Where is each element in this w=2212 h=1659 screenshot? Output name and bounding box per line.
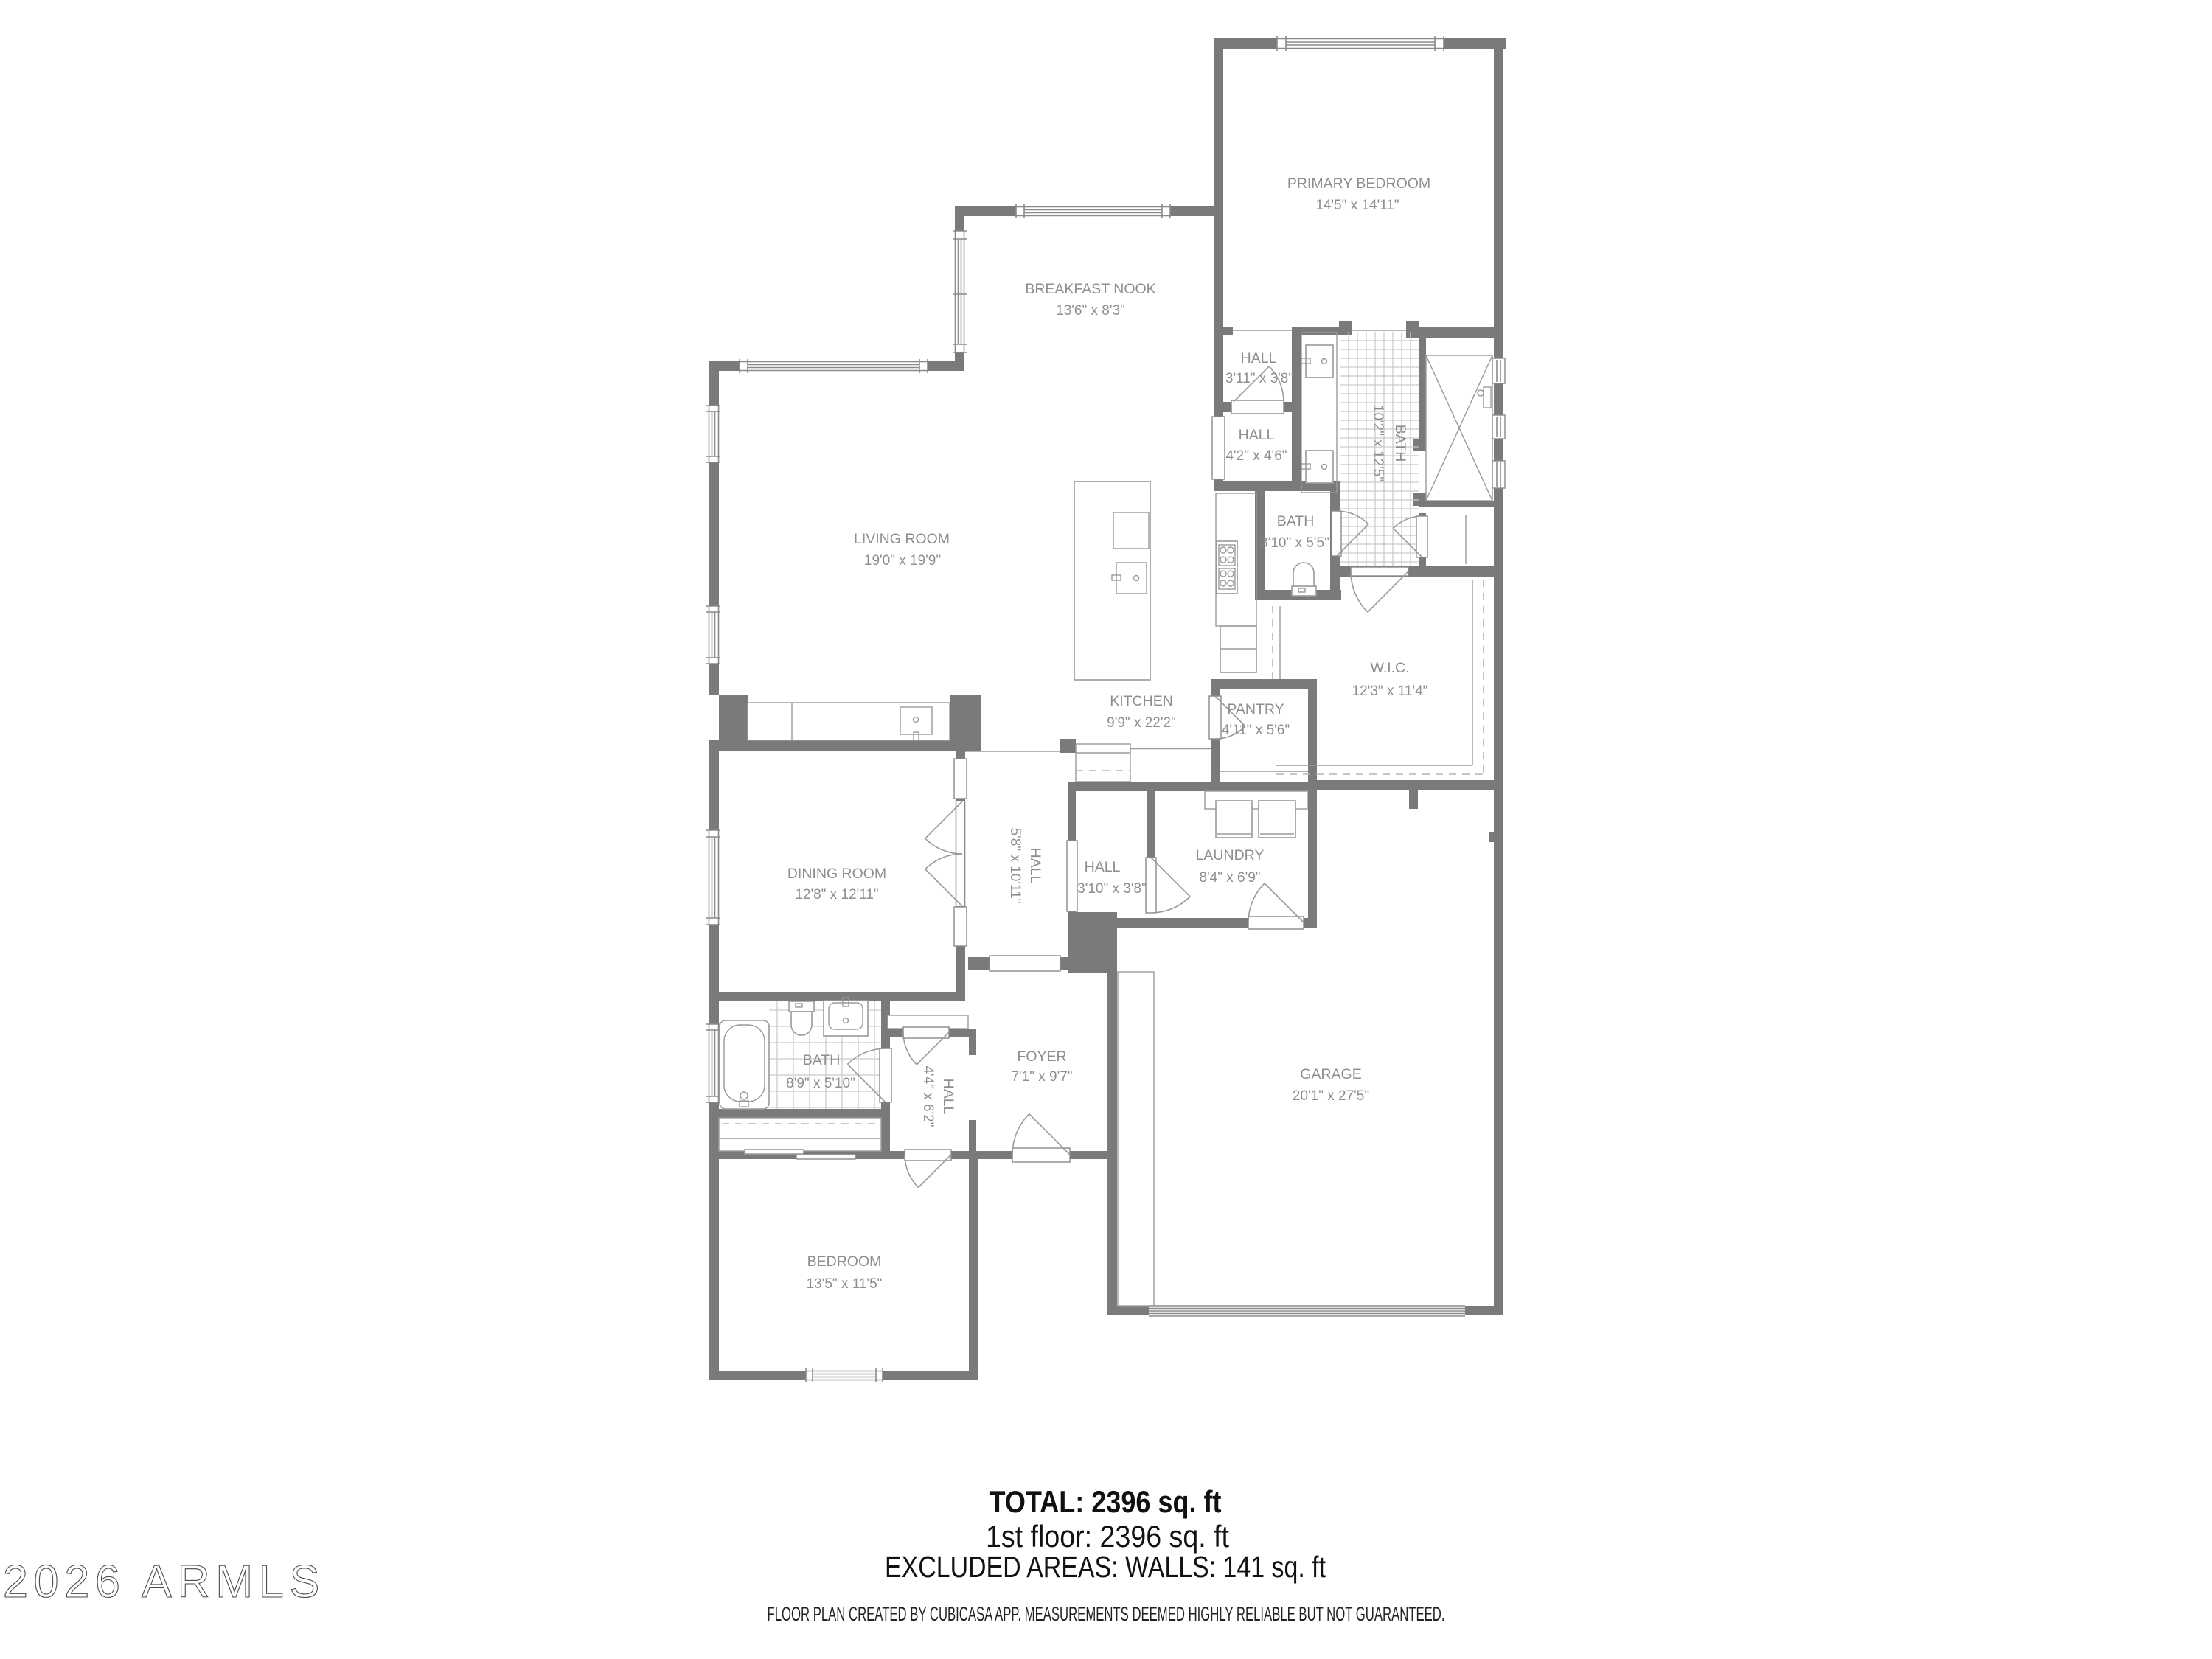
- svg-text:EXCLUDED AREAS: WALLS: 141 sq.: EXCLUDED AREAS: WALLS: 141 sq. ft: [885, 1550, 1326, 1584]
- svg-text:12'3" x 11'4": 12'3" x 11'4": [1352, 684, 1428, 699]
- svg-text:3'11" x 3'8": 3'11" x 3'8": [1225, 371, 1293, 386]
- svg-text:TOTAL: 2396 sq. ft: TOTAL: 2396 sq. ft: [990, 1484, 1222, 1519]
- svg-text:10'2" x 12'5": 10'2" x 12'5": [1370, 405, 1385, 481]
- svg-text:12'8" x 12'11": 12'8" x 12'11": [795, 887, 878, 902]
- svg-text:DINING ROOM: DINING ROOM: [787, 866, 886, 882]
- svg-text:FOYER: FOYER: [1017, 1048, 1066, 1065]
- svg-text:HALL: HALL: [1239, 427, 1275, 443]
- svg-text:7'1" x 9'7": 7'1" x 9'7": [1011, 1069, 1072, 1085]
- svg-text:14'5" x 14'11": 14'5" x 14'11": [1315, 198, 1399, 213]
- svg-text:8'9" x 5'10": 8'9" x 5'10": [786, 1076, 855, 1091]
- svg-text:3'10" x 3'8": 3'10" x 3'8": [1077, 881, 1147, 897]
- svg-text:PRIMARY BEDROOM: PRIMARY BEDROOM: [1287, 175, 1430, 192]
- svg-text:4'2" x 4'6": 4'2" x 4'6": [1225, 448, 1287, 464]
- svg-text:4'11" x 5'6": 4'11" x 5'6": [1222, 723, 1290, 738]
- svg-text:19'0" x 19'9": 19'0" x 19'9": [864, 553, 941, 568]
- svg-text:HALL: HALL: [940, 1079, 956, 1115]
- svg-text:BREAKFAST NOOK: BREAKFAST NOOK: [1025, 281, 1155, 297]
- svg-text:2026 ARMLS: 2026 ARMLS: [3, 1557, 325, 1607]
- svg-text:8'4" x 6'9": 8'4" x 6'9": [1199, 870, 1260, 886]
- svg-text:13'5" x 11'5": 13'5" x 11'5": [807, 1276, 883, 1292]
- svg-text:BATH: BATH: [1392, 425, 1408, 462]
- svg-text:W.I.C.: W.I.C.: [1370, 660, 1409, 676]
- svg-text:20'1" x 27'5": 20'1" x 27'5": [1293, 1088, 1369, 1104]
- svg-text:KITCHEN: KITCHEN: [1110, 693, 1173, 709]
- svg-text:5'8" x 10'11": 5'8" x 10'11": [1007, 828, 1023, 904]
- svg-text:BATH: BATH: [803, 1052, 841, 1068]
- svg-text:PANTRY: PANTRY: [1227, 701, 1284, 717]
- svg-text:HALL: HALL: [1027, 848, 1043, 884]
- svg-text:13'6" x 8'3": 13'6" x 8'3": [1056, 303, 1125, 319]
- svg-text:4'4" x 6'2": 4'4" x 6'2": [920, 1065, 936, 1127]
- svg-text:HALL: HALL: [1241, 350, 1277, 366]
- svg-text:GARAGE: GARAGE: [1300, 1066, 1361, 1082]
- svg-text:BEDROOM: BEDROOM: [807, 1253, 882, 1270]
- svg-text:1st floor: 2396 sq. ft: 1st floor: 2396 sq. ft: [986, 1519, 1229, 1554]
- svg-text:LAUNDRY: LAUNDRY: [1196, 847, 1265, 863]
- svg-text:9'9" x 22'2": 9'9" x 22'2": [1107, 715, 1176, 731]
- svg-text:BATH: BATH: [1277, 513, 1315, 529]
- svg-text:FLOOR PLAN CREATED BY CUBICASA: FLOOR PLAN CREATED BY CUBICASA APP. MEAS…: [768, 1603, 1445, 1625]
- svg-text:3'10" x 5'5": 3'10" x 5'5": [1260, 535, 1329, 551]
- svg-text:LIVING ROOM: LIVING ROOM: [854, 531, 950, 547]
- svg-text:HALL: HALL: [1085, 859, 1121, 875]
